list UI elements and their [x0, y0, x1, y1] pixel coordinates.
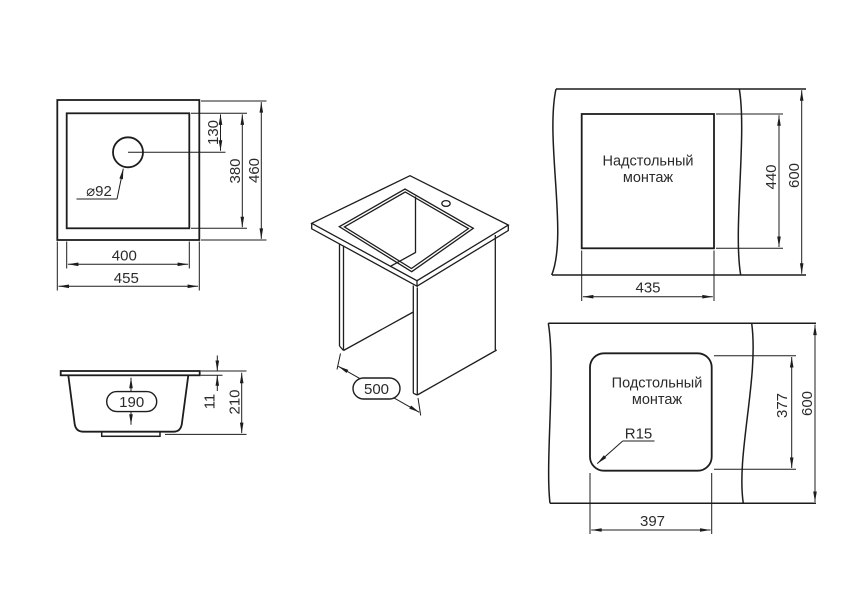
dim-label-outer-height: 460 — [246, 158, 263, 183]
iso-view: 500 — [312, 176, 509, 416]
dim-label-cutout-height: 377 — [774, 393, 791, 418]
dim-label-outer-width: 455 — [114, 270, 139, 287]
extension-lines — [582, 114, 783, 301]
break-line-right — [738, 89, 741, 275]
undermount-title-line2: монтаж — [632, 392, 683, 408]
dim-label-bowl-height: 380 — [227, 158, 244, 183]
undermount-title-line1: Подстольный — [612, 376, 703, 392]
dim-label-cutout-width: 397 — [640, 513, 665, 530]
top-view: ⌀92 130 380 460 400 455 — [57, 100, 266, 291]
overmount-title-line2: монтаж — [623, 170, 674, 186]
undermount-cutout — [590, 353, 712, 470]
hole-leader-line — [117, 169, 123, 199]
dim-label-bowl-depth: 190 — [119, 394, 144, 411]
sink-technical-drawing: ⌀92 130 380 460 400 455 190 11 210 500 — [0, 0, 860, 611]
dim-label-counter-depth: 600 — [786, 163, 803, 188]
dim-label-hole-diameter: ⌀92 — [86, 183, 112, 200]
overmount-view: Надстольный монтаж 435 440 600 — [552, 89, 806, 301]
dim-label-corner-radius: R15 — [625, 425, 653, 442]
dim-label-cabinet-depth: 500 — [364, 381, 389, 398]
break-line-left — [548, 323, 551, 503]
overmount-title-line1: Надстольный — [602, 154, 693, 170]
dim-label-total-height: 210 — [226, 389, 243, 414]
dim-label-cutout-height: 440 — [763, 164, 780, 189]
sink-flange — [61, 371, 200, 375]
dim-label-counter-depth: 600 — [799, 391, 816, 416]
radius-leader-line — [597, 441, 623, 464]
break-line-left — [552, 89, 558, 275]
drain-fitting — [102, 432, 160, 437]
undermount-view: Подстольный монтаж R15 397 377 600 — [548, 323, 816, 534]
drawing-svg: ⌀92 130 380 460 400 455 190 11 210 500 — [0, 0, 860, 611]
sink-bowl-rect — [67, 113, 190, 228]
dim-label-cutout-width: 435 — [635, 280, 660, 297]
break-line-right — [742, 323, 753, 503]
dim-label-hole-offset: 130 — [205, 120, 222, 145]
sink-outer-rect — [57, 100, 199, 240]
dim-label-rim-thickness: 11 — [202, 394, 219, 410]
side-view: 190 11 210 — [61, 356, 247, 437]
dim-label-bowl-width: 400 — [112, 248, 137, 265]
